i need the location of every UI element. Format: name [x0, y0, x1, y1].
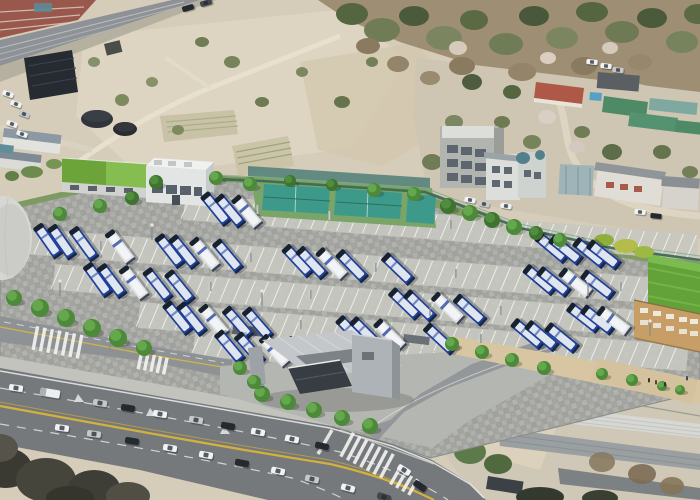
pedestrian — [655, 380, 657, 385]
pedestrian — [664, 382, 666, 387]
charging-post — [479, 334, 482, 343]
charging-post — [99, 241, 102, 250]
charging-post — [249, 253, 252, 262]
charging-post — [374, 263, 377, 272]
charging-post — [309, 290, 312, 299]
charging-post — [449, 220, 452, 229]
charging-post — [209, 282, 212, 291]
pedestrian — [686, 376, 688, 381]
pedestrian — [648, 378, 650, 383]
charging-post — [454, 269, 457, 278]
screenshot-bus-depot-aerial — [0, 0, 700, 500]
charging-post — [329, 211, 332, 220]
charging-post — [299, 320, 302, 329]
charging-post — [619, 282, 622, 291]
charging-post — [257, 205, 260, 214]
charging-post — [499, 306, 502, 315]
aerial-scene — [0, 0, 700, 500]
